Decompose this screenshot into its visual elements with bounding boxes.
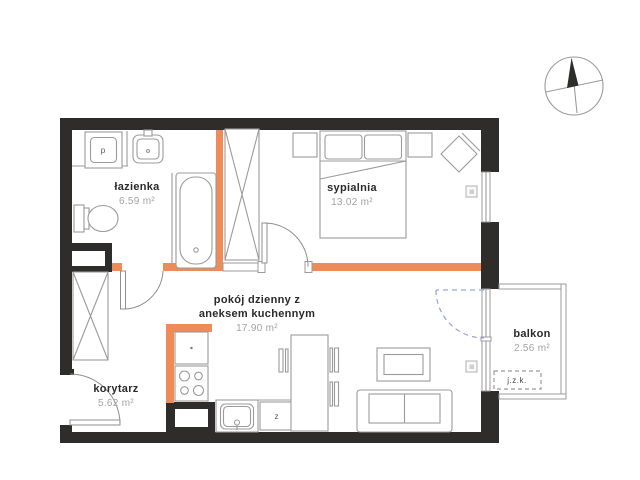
wall-bottom bbox=[60, 432, 498, 443]
room-label-bedroom: sypialnia bbox=[327, 182, 377, 194]
bathtub-basin bbox=[180, 177, 212, 264]
wall-right-upper bbox=[481, 118, 499, 172]
floor-plan: łazienka 6.59 m² sypialnia 13.02 m² pokó… bbox=[0, 0, 640, 480]
balcony-door-swing bbox=[436, 290, 484, 338]
accent-wall-bath-bedroom bbox=[216, 130, 223, 271]
bathroom-sink-faucet bbox=[144, 130, 152, 136]
dining-table bbox=[291, 335, 328, 431]
accent-wall-bedroom-living bbox=[308, 263, 481, 271]
floor-plan-page: łazienka 6.59 m² sypialnia 13.02 m² pokó… bbox=[0, 0, 640, 480]
room-area-bedroom: 13.02 m² bbox=[331, 197, 373, 208]
room-label-bathroom: łazienka bbox=[114, 181, 160, 193]
room-label-living-line1: pokój dzienny z bbox=[214, 294, 301, 306]
stove bbox=[175, 366, 208, 401]
kitchen-faucet bbox=[235, 420, 240, 425]
window-tag-bedroom-glyph bbox=[470, 190, 475, 195]
pillow-left bbox=[325, 135, 362, 159]
wall-top bbox=[60, 118, 499, 130]
balcony-structure bbox=[494, 284, 566, 399]
balcony-door-arc-dashed bbox=[436, 290, 484, 338]
ac-unit-label: j.z.k. bbox=[506, 376, 526, 385]
room-label-living-line2: aneksem kuchennym bbox=[199, 308, 315, 320]
nightstand-right bbox=[408, 133, 432, 157]
room-label-balcony: balkon bbox=[513, 328, 550, 340]
dining-chair bbox=[279, 349, 288, 372]
door-entrance-leaf bbox=[70, 420, 120, 425]
wall-right-lower bbox=[481, 391, 499, 443]
room-area-balcony: 2.56 m² bbox=[514, 343, 550, 354]
dining-chair bbox=[330, 348, 339, 372]
nightstand-left bbox=[293, 133, 317, 157]
door-bedroom-swing bbox=[265, 223, 309, 267]
accent-wall-bathdoor-stub bbox=[112, 263, 122, 271]
dining-chair bbox=[330, 382, 339, 406]
door-bedroom-leaf bbox=[262, 223, 267, 263]
compass-rose-icon bbox=[545, 57, 603, 115]
wall-under-closet bbox=[223, 263, 262, 271]
bedroom-furniture bbox=[293, 131, 480, 238]
accent-wall-kitchen-side bbox=[166, 324, 174, 403]
toilet-tank bbox=[74, 205, 84, 232]
shaft-bathroom-inner bbox=[72, 251, 105, 266]
balcony-wall-top bbox=[499, 284, 566, 289]
room-area-bathroom: 6.59 m² bbox=[119, 196, 155, 207]
bedroom-armchair bbox=[441, 136, 477, 172]
room-area-living: 17.90 m² bbox=[236, 323, 278, 334]
window-tag-living-glyph bbox=[470, 365, 475, 370]
bedroom-door-jamb-right bbox=[305, 262, 312, 273]
door-bathroom-swing bbox=[123, 271, 163, 309]
shaft-kitchen-inner bbox=[175, 409, 208, 427]
dishwasher-tag: z bbox=[275, 412, 279, 421]
compass-north-needle bbox=[567, 58, 579, 88]
toilet-bowl bbox=[88, 206, 118, 232]
washing-machine-tag: p bbox=[101, 146, 106, 155]
balcony-wall-right bbox=[561, 284, 566, 399]
fridge-dot bbox=[190, 347, 192, 349]
balcony-wall-bottom bbox=[499, 394, 566, 399]
door-bathroom-leaf bbox=[121, 271, 126, 309]
window-tags bbox=[466, 186, 477, 372]
room-label-corridor: korytarz bbox=[93, 383, 138, 395]
room-area-corridor: 5.62 m² bbox=[98, 398, 134, 409]
living-furniture bbox=[279, 335, 452, 432]
coffee-table-inner bbox=[384, 355, 423, 375]
pillow-right bbox=[365, 135, 402, 159]
wall-right-middle bbox=[481, 222, 499, 289]
